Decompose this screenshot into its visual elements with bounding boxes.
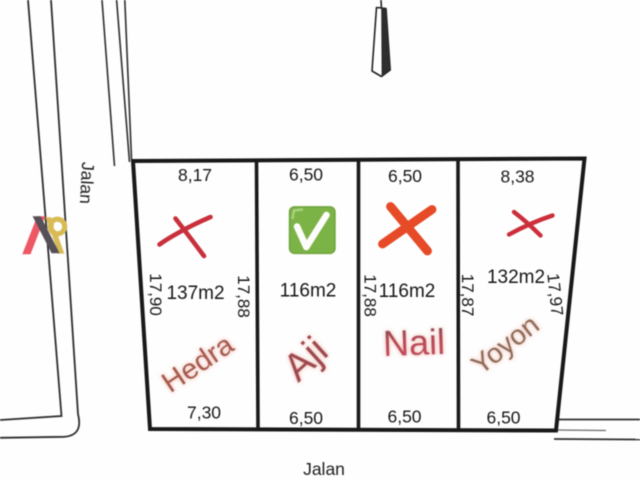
svg-text:132m2: 132m2: [487, 267, 545, 288]
svg-text:17,90: 17,90: [146, 273, 165, 316]
svg-text:6,50: 6,50: [289, 408, 323, 428]
svg-text:17,88: 17,88: [361, 274, 380, 317]
svg-text:6,50: 6,50: [388, 166, 422, 186]
svg-text:17,87: 17,87: [458, 274, 477, 317]
svg-text:6,50: 6,50: [387, 407, 421, 427]
svg-text:Jalan: Jalan: [76, 162, 98, 205]
svg-text:8,38: 8,38: [500, 167, 534, 187]
svg-text:6,50: 6,50: [486, 408, 520, 428]
svg-text:116m2: 116m2: [379, 281, 436, 302]
svg-text:7,30: 7,30: [187, 403, 221, 423]
svg-text:Jalan: Jalan: [303, 459, 345, 479]
svg-text:6,50: 6,50: [289, 165, 323, 185]
svg-text:17,88: 17,88: [234, 275, 253, 318]
svg-text:8,17: 8,17: [178, 165, 212, 185]
svg-text:Nail: Nail: [382, 321, 445, 364]
svg-text:116m2: 116m2: [280, 281, 337, 302]
svg-text:137m2: 137m2: [166, 283, 224, 304]
